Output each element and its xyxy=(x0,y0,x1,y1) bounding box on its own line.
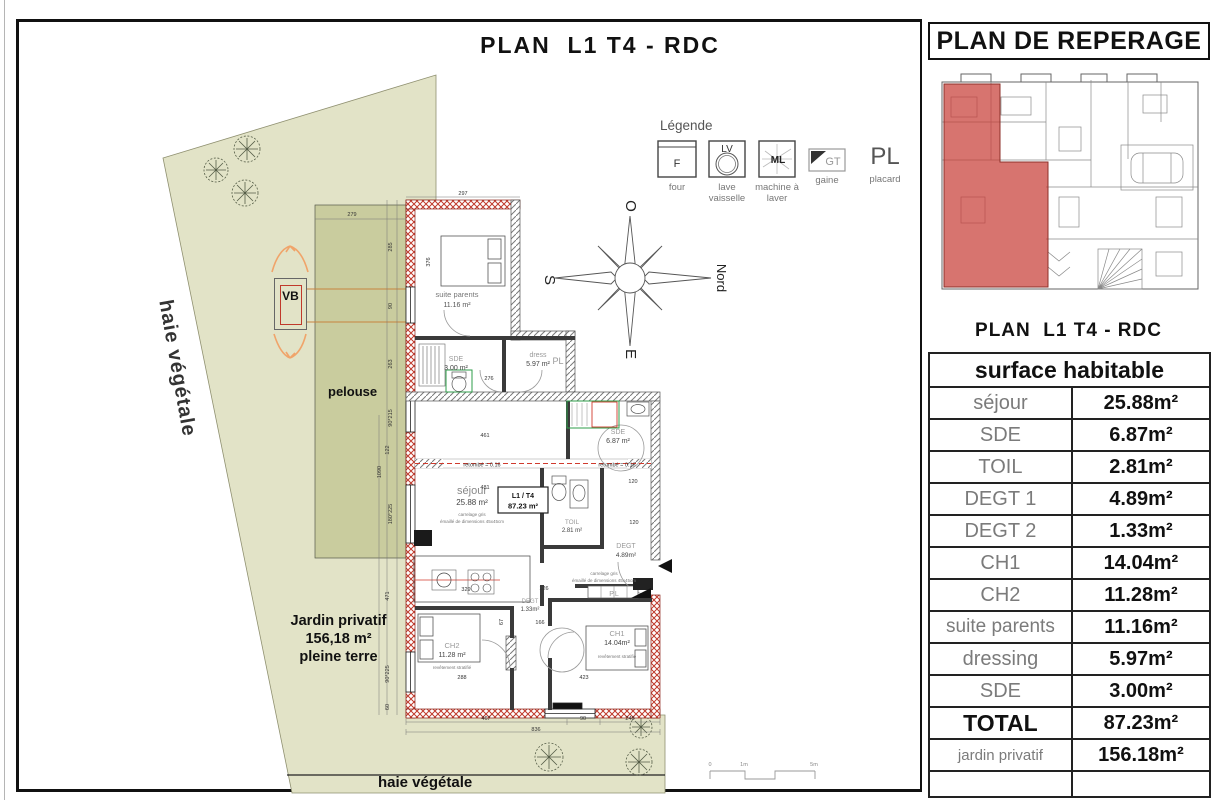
svg-text:6.87 m²: 6.87 m² xyxy=(606,438,630,445)
table-row-total: TOTAL87.23m² xyxy=(929,707,1210,739)
svg-text:180*225: 180*225 xyxy=(388,504,394,525)
svg-text:122: 122 xyxy=(385,445,391,454)
svg-text:2.81 m²: 2.81 m² xyxy=(562,528,582,534)
tree-icon xyxy=(535,743,563,771)
beam-note-left: retombé = 0.16 xyxy=(463,463,500,469)
compass-south-label: S xyxy=(543,275,558,285)
vb-box: VB xyxy=(274,278,307,330)
room-ch1: CH1 xyxy=(609,629,624,638)
table-row: DEGT 14.89m² xyxy=(929,483,1210,515)
table-row: CH114.04m² xyxy=(929,547,1210,579)
table-row: jardin privatif156.18m² xyxy=(929,739,1210,771)
svg-text:423: 423 xyxy=(579,675,588,681)
svg-text:467: 467 xyxy=(481,716,490,722)
closet-pl2-label: P.L xyxy=(609,591,619,598)
svg-text:90*225: 90*225 xyxy=(385,665,391,682)
svg-text:4.89m²: 4.89m² xyxy=(616,552,637,559)
table-empty-row xyxy=(929,771,1210,797)
table-row: SDE3.00m² xyxy=(929,675,1210,707)
svg-text:263: 263 xyxy=(388,359,394,368)
window-icon xyxy=(406,287,415,323)
svg-text:297: 297 xyxy=(458,191,467,197)
compass-north-label: Nord xyxy=(714,264,729,292)
garden-label: Jardin privatif 156,18 m² pleine terre xyxy=(266,612,411,666)
unit-badge: L1 / T4 87.23 m² xyxy=(498,487,548,513)
svg-text:revêtement stratifié: revêtement stratifié xyxy=(433,665,472,670)
surface-table: surface habitable séjour25.88m² SDE6.87m… xyxy=(928,352,1211,798)
lawn-label: pelouse xyxy=(328,384,377,399)
svg-text:120: 120 xyxy=(629,520,638,526)
svg-text:F: F xyxy=(674,158,681,170)
svg-text:329: 329 xyxy=(461,587,470,593)
svg-text:3.00 m²: 3.00 m² xyxy=(444,365,468,372)
table-row: suite parents11.16m² xyxy=(929,611,1210,643)
table-row: séjour25.88m² xyxy=(929,387,1210,419)
duct-icon: GT xyxy=(808,148,846,172)
svg-text:471: 471 xyxy=(385,591,391,600)
room-toil: TOIL xyxy=(565,519,580,526)
svg-text:25.88 m²: 25.88 m² xyxy=(456,498,488,507)
hedge-bottom-label: haie végétale xyxy=(378,774,472,791)
compass-east-label: E xyxy=(622,349,639,359)
legend-title: Légende xyxy=(660,118,920,133)
compass-star xyxy=(555,216,711,346)
svg-text:276: 276 xyxy=(484,376,493,382)
room-degt2: DEGT xyxy=(522,599,539,605)
dishwasher-icon: LV xyxy=(707,139,747,179)
compass-west-label: O xyxy=(622,200,639,212)
svg-text:1090: 1090 xyxy=(377,466,383,478)
svg-text:émaillé de dimensions 45x45cm: émaillé de dimensions 45x45cm xyxy=(572,578,636,583)
svg-text:376: 376 xyxy=(426,257,432,266)
scale-bar: 0 1m 5m xyxy=(708,762,818,779)
oven-icon: F xyxy=(656,139,698,179)
svg-text:1.33m²: 1.33m² xyxy=(521,607,540,613)
table-row: SDE6.87m² xyxy=(929,419,1210,451)
svg-text:0: 0 xyxy=(708,762,711,768)
legend-item-lave-vaisselle: LV lave vaisselle xyxy=(702,139,752,205)
svg-text:285: 285 xyxy=(388,242,394,251)
entry-arrow xyxy=(658,559,672,573)
vb-label: VB xyxy=(275,289,306,303)
svg-text:67: 67 xyxy=(499,619,505,625)
svg-text:11.28 m²: 11.28 m² xyxy=(438,652,466,659)
placard-symbol: PL xyxy=(870,143,899,171)
svg-text:166: 166 xyxy=(535,620,544,626)
svg-text:90*215: 90*215 xyxy=(388,409,394,426)
svg-text:carrelage gris: carrelage gris xyxy=(590,571,618,576)
svg-text:5m: 5m xyxy=(810,762,818,768)
svg-text:émaillé de dimensions 45x45cm: émaillé de dimensions 45x45cm xyxy=(440,519,504,524)
surface-table-header: surface habitable xyxy=(929,353,1210,387)
svg-text:90: 90 xyxy=(580,716,586,722)
window-icon xyxy=(406,400,415,432)
beam-retombe: retombé = 0.16 retombé = 0.16 xyxy=(415,459,651,469)
svg-text:11.16 m²: 11.16 m² xyxy=(443,302,471,309)
plan-sheet: PLAN L1 T4 - RDC xyxy=(0,0,1226,800)
room-ch2: CH2 xyxy=(444,641,459,650)
room-sde-suite: SDE xyxy=(449,356,464,363)
legend-item-machine-a-laver: ML machine à laver xyxy=(752,139,802,205)
svg-text:ML: ML xyxy=(771,155,785,166)
svg-text:90: 90 xyxy=(388,303,394,309)
table-row: CH211.28m² xyxy=(929,579,1210,611)
svg-text:L1 / T4: L1 / T4 xyxy=(512,493,534,500)
svg-text:288: 288 xyxy=(457,675,466,681)
legend-item-gaine: GT gaine xyxy=(802,148,852,187)
svg-text:87.23 m²: 87.23 m² xyxy=(508,502,539,511)
svg-text:120: 120 xyxy=(628,479,637,485)
svg-text:revêtement stratifié: revêtement stratifié xyxy=(598,654,637,659)
table-row: dressing5.97m² xyxy=(929,643,1210,675)
room-degt1: DEGT xyxy=(616,543,636,550)
room-sde: SDE xyxy=(611,429,626,436)
svg-text:461: 461 xyxy=(480,433,489,439)
table-row: DEGT 21.33m² xyxy=(929,515,1210,547)
window-icon xyxy=(406,485,415,543)
svg-text:279: 279 xyxy=(347,212,356,218)
room-suite-parents: suite parents xyxy=(436,290,479,299)
reference-panel: PLAN DE REPERAGE xyxy=(920,19,1215,792)
svg-text:126: 126 xyxy=(539,586,548,592)
panel-plan-caption: PLAN L1 T4 - RDC xyxy=(922,320,1215,342)
svg-text:carrelage gris: carrelage gris xyxy=(458,512,486,517)
legend-item-placard: PL placard xyxy=(860,139,910,186)
legend-item-four: F four xyxy=(652,139,702,194)
svg-text:1m: 1m xyxy=(740,762,748,768)
panel-title: PLAN DE REPERAGE xyxy=(928,22,1210,60)
legend: Légende F four LV lave vaisselle xyxy=(652,118,920,205)
svg-text:248: 248 xyxy=(625,716,634,722)
washing-machine-icon: ML xyxy=(757,139,797,179)
compass-rose: O S E Nord xyxy=(543,198,733,363)
svg-text:836: 836 xyxy=(531,727,540,733)
svg-text:481: 481 xyxy=(480,485,489,491)
svg-text:14.04m²: 14.04m² xyxy=(604,640,630,647)
svg-text:GT: GT xyxy=(825,156,841,168)
key-plan xyxy=(931,67,1208,315)
table-row: TOIL2.81m² xyxy=(929,451,1210,483)
svg-text:60: 60 xyxy=(385,704,391,710)
